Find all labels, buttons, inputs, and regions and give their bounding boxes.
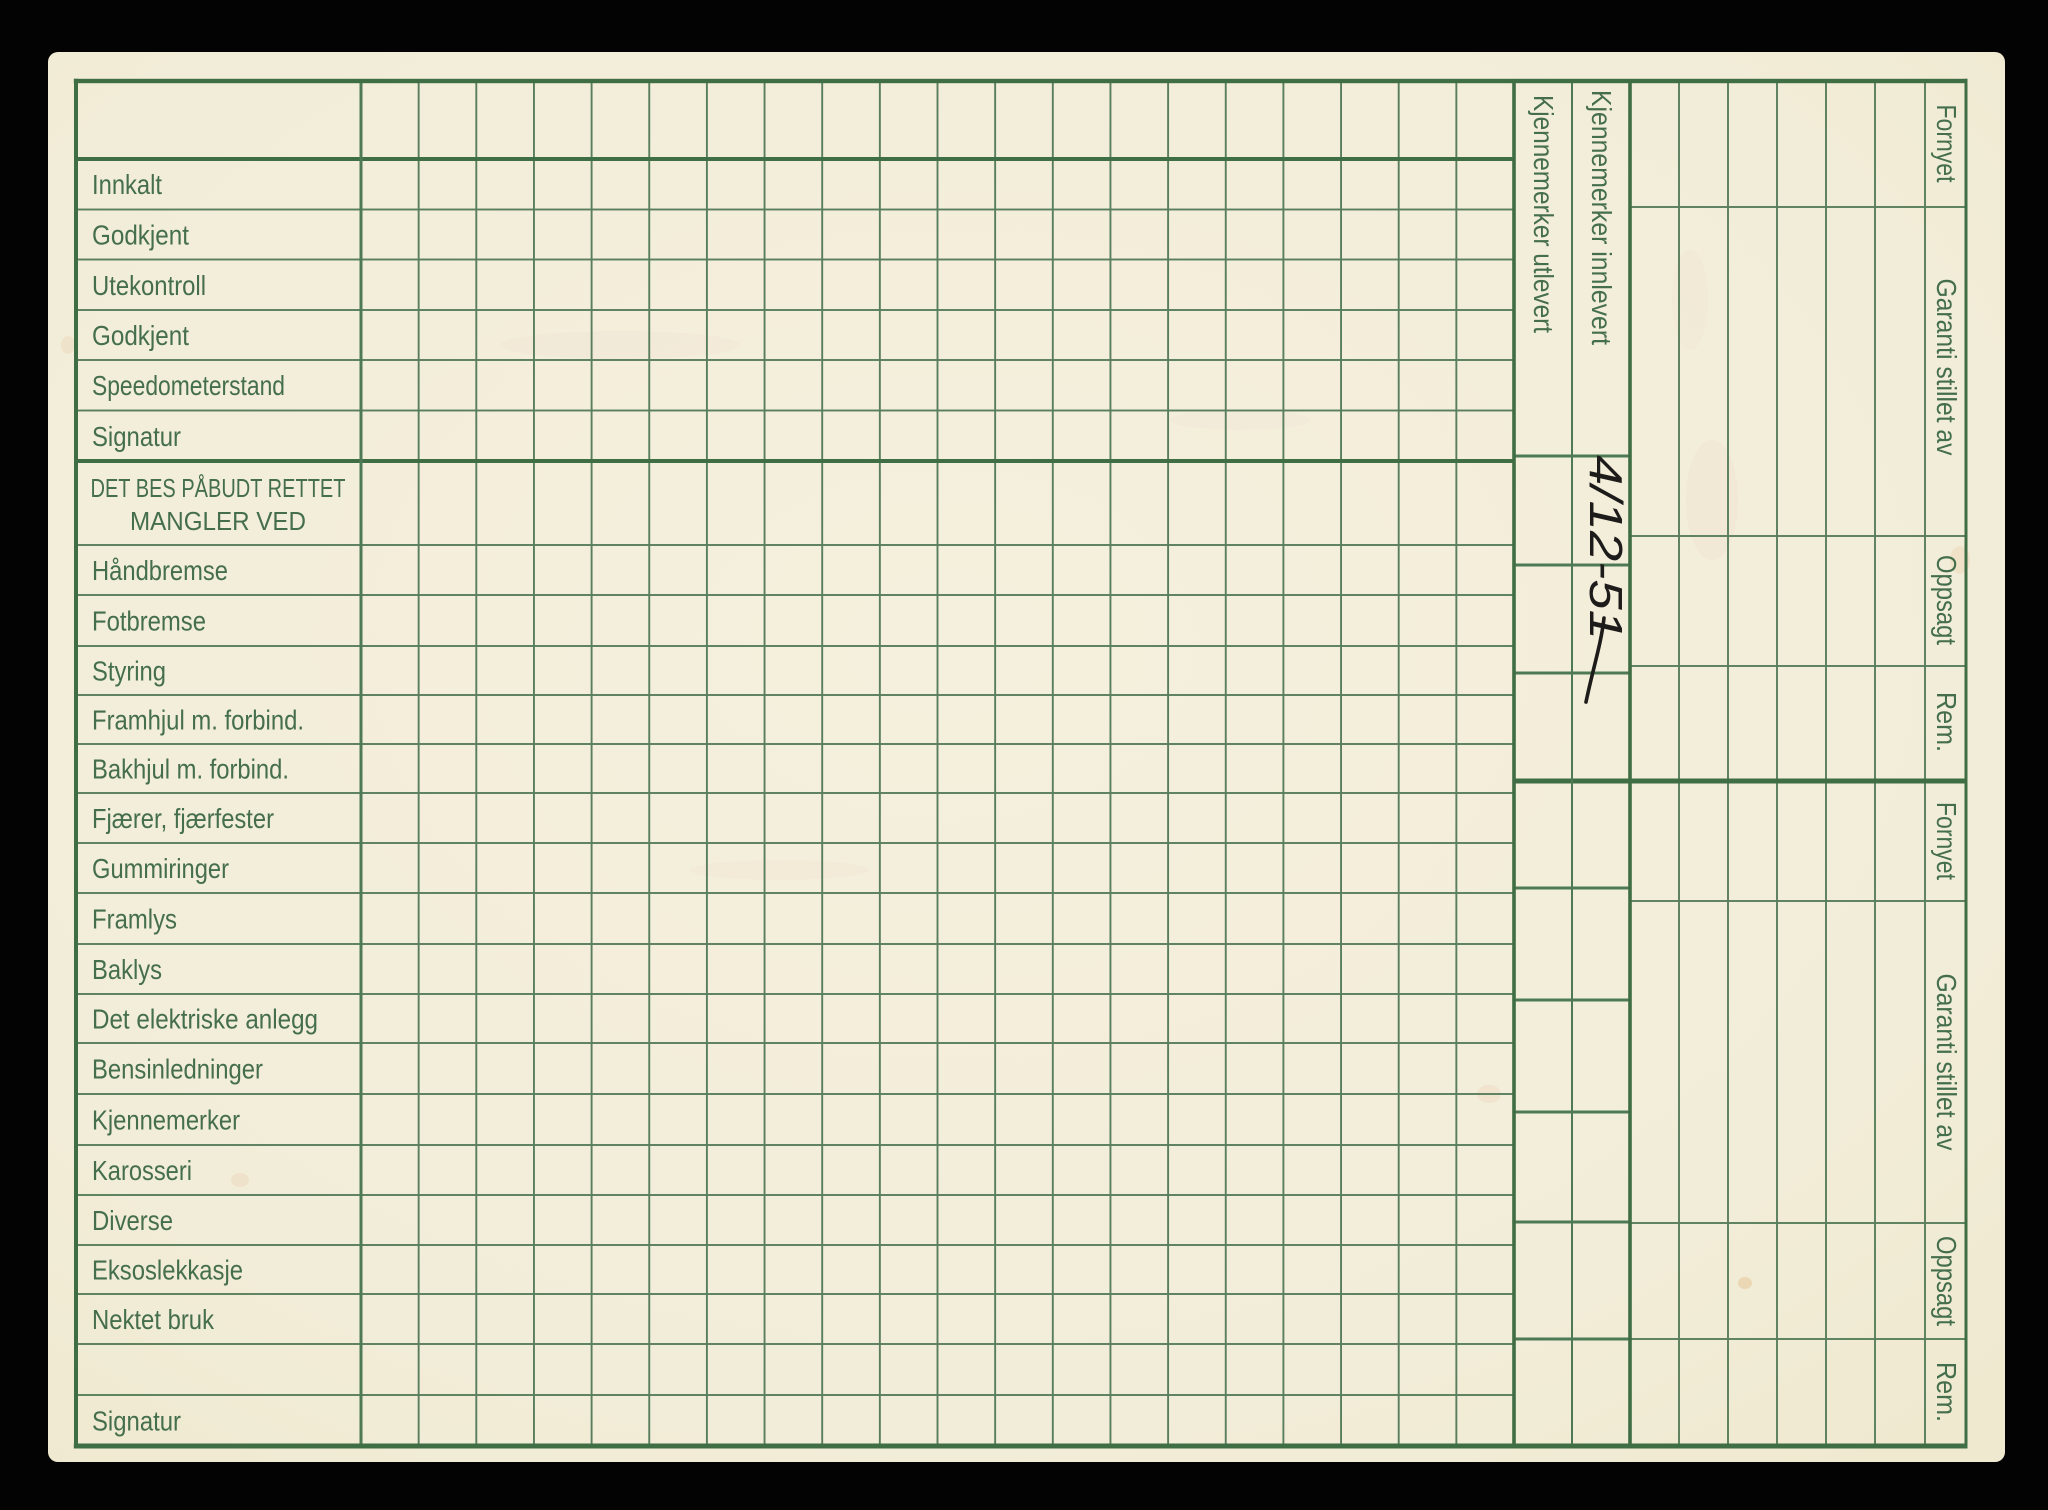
svg-text:Garanti stillet av: Garanti stillet av <box>1931 279 1962 456</box>
svg-text:Framhjul m. forbind.: Framhjul m. forbind. <box>92 705 304 736</box>
svg-text:Oppsagt: Oppsagt <box>1931 1236 1962 1326</box>
svg-text:Signatur: Signatur <box>92 1406 181 1437</box>
svg-text:Signatur: Signatur <box>92 421 181 452</box>
svg-text:Fotbremse: Fotbremse <box>92 606 206 637</box>
svg-text:Diverse: Diverse <box>92 1205 173 1236</box>
svg-text:Baklys: Baklys <box>92 954 162 985</box>
svg-text:Oppsagt: Oppsagt <box>1931 555 1962 645</box>
svg-text:Håndbremse: Håndbremse <box>92 555 228 586</box>
svg-text:Rem.: Rem. <box>1931 692 1962 752</box>
svg-text:Godkjent: Godkjent <box>92 220 189 251</box>
svg-text:Fornyet: Fornyet <box>1931 802 1962 880</box>
svg-text:Innkalt: Innkalt <box>92 169 162 200</box>
svg-text:Framlys: Framlys <box>92 904 177 935</box>
svg-text:Nektet bruk: Nektet bruk <box>92 1304 215 1335</box>
svg-text:Kjennemerker innlevert: Kjennemerker innlevert <box>1586 90 1617 345</box>
svg-text:Bensinledninger: Bensinledninger <box>92 1054 263 1085</box>
svg-text:Fornyet: Fornyet <box>1931 105 1962 183</box>
svg-text:Bakhjul m. forbind.: Bakhjul m. forbind. <box>92 754 289 785</box>
svg-text:Det elektriske anlegg: Det elektriske anlegg <box>92 1004 318 1035</box>
svg-text:Gummiringer: Gummiringer <box>92 853 229 884</box>
svg-text:MANGLER VED: MANGLER VED <box>130 508 306 536</box>
svg-text:Garanti stillet av: Garanti stillet av <box>1931 974 1962 1151</box>
svg-text:Speedometerstand: Speedometerstand <box>92 370 285 401</box>
svg-text:Rem.: Rem. <box>1931 1362 1962 1422</box>
svg-text:Utekontroll: Utekontroll <box>92 270 206 301</box>
svg-text:Eksoslekkasje: Eksoslekkasje <box>92 1255 243 1286</box>
svg-text:Styring: Styring <box>92 656 166 687</box>
svg-text:Kjennemerker: Kjennemerker <box>92 1105 240 1136</box>
svg-text:Kjennemerker utlevert: Kjennemerker utlevert <box>1528 95 1559 333</box>
svg-text:4/12-51: 4/12-51 <box>1580 455 1632 640</box>
svg-text:Fjærer, fjærfester: Fjærer, fjærfester <box>92 803 274 834</box>
svg-text:Godkjent: Godkjent <box>92 320 189 351</box>
svg-text:Karosseri: Karosseri <box>92 1155 192 1186</box>
svg-text:DET BES PÅBUDT RETTET: DET BES PÅBUDT RETTET <box>91 473 346 503</box>
